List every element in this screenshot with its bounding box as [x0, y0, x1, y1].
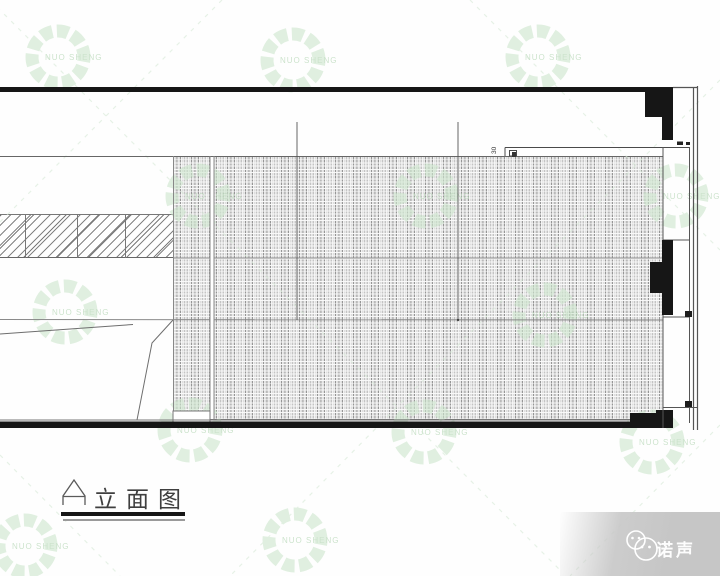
- ceiling-step: [505, 148, 690, 157]
- hanger-lines: [297, 122, 458, 320]
- section-cut-block: [650, 240, 673, 315]
- right-wall-section: [673, 86, 698, 430]
- panel-joints: [174, 156, 215, 421]
- elevation-drawing-canvas: NUO SHENG: [0, 0, 720, 576]
- caption-underline: [61, 512, 185, 516]
- caption-underline-thin: [63, 519, 185, 521]
- step-detail: [512, 152, 516, 157]
- top-beam: [0, 87, 648, 92]
- floor-beam-block: [656, 410, 673, 428]
- elevation-marker-icon: [56, 474, 92, 508]
- footer-brand-bar: 诺声: [560, 512, 720, 576]
- connector-node: [685, 401, 692, 407]
- dimension-label: 30: [491, 146, 498, 154]
- hatch-dividers: [26, 214, 126, 258]
- base-plinth: [173, 411, 210, 423]
- brand-text: 诺声: [656, 536, 696, 561]
- fixing-tick: [677, 142, 683, 146]
- top-right-beam-block: [645, 87, 673, 140]
- fixing-tick: [686, 142, 690, 145]
- hanger-end-dot: [457, 319, 459, 321]
- ramp-lines: [0, 320, 173, 420]
- connector-node: [685, 311, 692, 317]
- seam-lines: [0, 258, 663, 320]
- caption-text: 立面图: [94, 480, 190, 514]
- floor-beam: [0, 422, 673, 429]
- caption-block: 立面图: [56, 472, 216, 528]
